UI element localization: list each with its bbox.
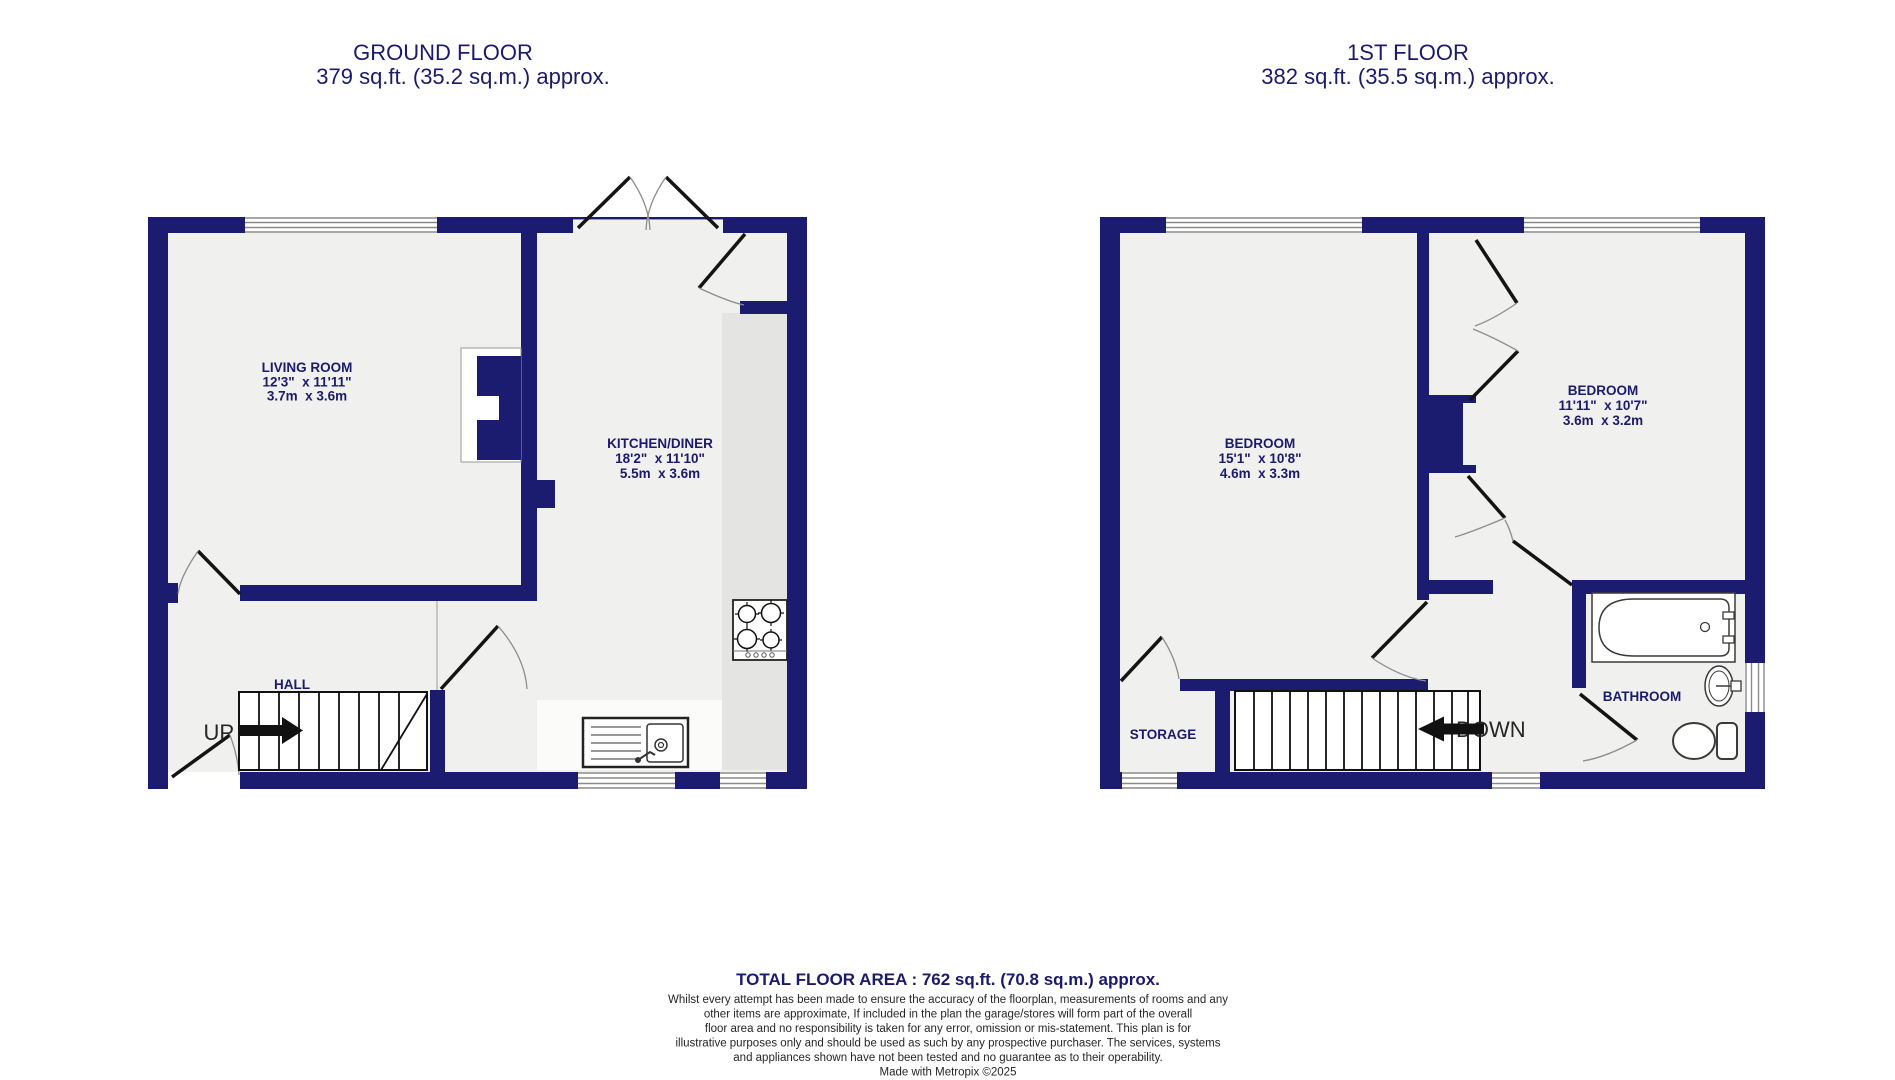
kitchen-dims-imperial: 18'2" x 11'10" bbox=[615, 451, 705, 466]
gf-fireplace bbox=[461, 348, 521, 462]
gf-french-doors bbox=[573, 177, 723, 233]
ff-window-top-left bbox=[1166, 217, 1362, 233]
bathroom-label: BATHROOM bbox=[1603, 689, 1682, 704]
ground-floor-plan: GROUND FLOOR 379 sq.ft. (35.2 sq.m.) app… bbox=[148, 40, 807, 789]
disclaimer-line: Whilst every attempt has been made to en… bbox=[668, 994, 1228, 1006]
footer: TOTAL FLOOR AREA : 762 sq.ft. (70.8 sq.m… bbox=[668, 970, 1228, 1079]
gf-living-room-label: LIVING ROOM 12'3" x 11'11" 3.7m x 3.6m bbox=[262, 360, 353, 404]
gf-window-bottom-left bbox=[578, 772, 675, 789]
bedroom1-dims-metric: 4.6m x 3.3m bbox=[1220, 466, 1300, 481]
living-room-dims-imperial: 12'3" x 11'11" bbox=[262, 375, 351, 390]
total-floor-area: TOTAL FLOOR AREA : 762 sq.ft. (70.8 sq.m… bbox=[736, 970, 1160, 989]
gf-up-label: UP bbox=[203, 720, 234, 745]
bedroom2-dims-metric: 3.6m x 3.2m bbox=[1563, 413, 1643, 428]
disclaimer-line: floor area and no responsibility is take… bbox=[705, 1023, 1191, 1035]
ff-window-bottom-right bbox=[1492, 772, 1540, 789]
first-floor-title: 1ST FLOOR bbox=[1347, 40, 1469, 65]
living-room-name: LIVING ROOM bbox=[262, 360, 353, 375]
cooktop bbox=[733, 600, 787, 660]
ff-bedroom2-label: BEDROOM 11'11" x 10'7" 3.6m x 3.2m bbox=[1558, 383, 1647, 428]
ff-bedroom1-label: BEDROOM 15'1" x 10'8" 4.6m x 3.3m bbox=[1218, 436, 1301, 481]
ff-window-right bbox=[1745, 663, 1765, 712]
ground-floor-area: 379 sq.ft. (35.2 sq.m.) approx. bbox=[316, 64, 609, 89]
disclaimer-line: other items are approximate, If included… bbox=[704, 1009, 1192, 1021]
bedroom1-name: BEDROOM bbox=[1225, 436, 1296, 451]
storage-label: STORAGE bbox=[1130, 727, 1197, 742]
bedroom2-dims-imperial: 11'11" x 10'7" bbox=[1558, 398, 1647, 413]
gf-kitchen-label: KITCHEN/DINER 18'2" x 11'10" 5.5m x 3.6m bbox=[607, 436, 713, 481]
floorplan-image: GROUND FLOOR 379 sq.ft. (35.2 sq.m.) app… bbox=[0, 0, 1895, 1080]
toilet bbox=[1673, 723, 1737, 759]
disclaimer-line: and appliances shown have not been teste… bbox=[733, 1052, 1162, 1064]
disclaimer-line: illustrative purposes only and should be… bbox=[675, 1038, 1220, 1050]
sink-unit bbox=[583, 718, 688, 767]
first-floor-plan: 1ST FLOOR 382 sq.ft. (35.5 sq.m.) approx… bbox=[1100, 40, 1765, 789]
ff-window-top-right bbox=[1524, 217, 1700, 233]
ff-window-bottom-left bbox=[1122, 772, 1177, 789]
hall-label: HALL bbox=[274, 677, 310, 692]
metropix-credit: Made with Metropix ©2025 bbox=[880, 1067, 1017, 1079]
living-room-dims-metric: 3.7m x 3.6m bbox=[267, 389, 347, 404]
gf-window-bottom-right bbox=[720, 772, 766, 789]
bathtub bbox=[1592, 593, 1735, 662]
first-floor-area: 382 sq.ft. (35.5 sq.m.) approx. bbox=[1261, 64, 1554, 89]
gf-front-door-opening bbox=[168, 772, 240, 789]
ground-floor-title: GROUND FLOOR bbox=[353, 40, 533, 65]
gf-window-top bbox=[245, 217, 437, 233]
bedroom1-dims-imperial: 15'1" x 10'8" bbox=[1218, 451, 1301, 466]
kitchen-dims-metric: 5.5m x 3.6m bbox=[620, 466, 700, 481]
bedroom2-name: BEDROOM bbox=[1568, 383, 1639, 398]
kitchen-name: KITCHEN/DINER bbox=[607, 436, 713, 451]
gf-worktop-right bbox=[722, 313, 787, 770]
